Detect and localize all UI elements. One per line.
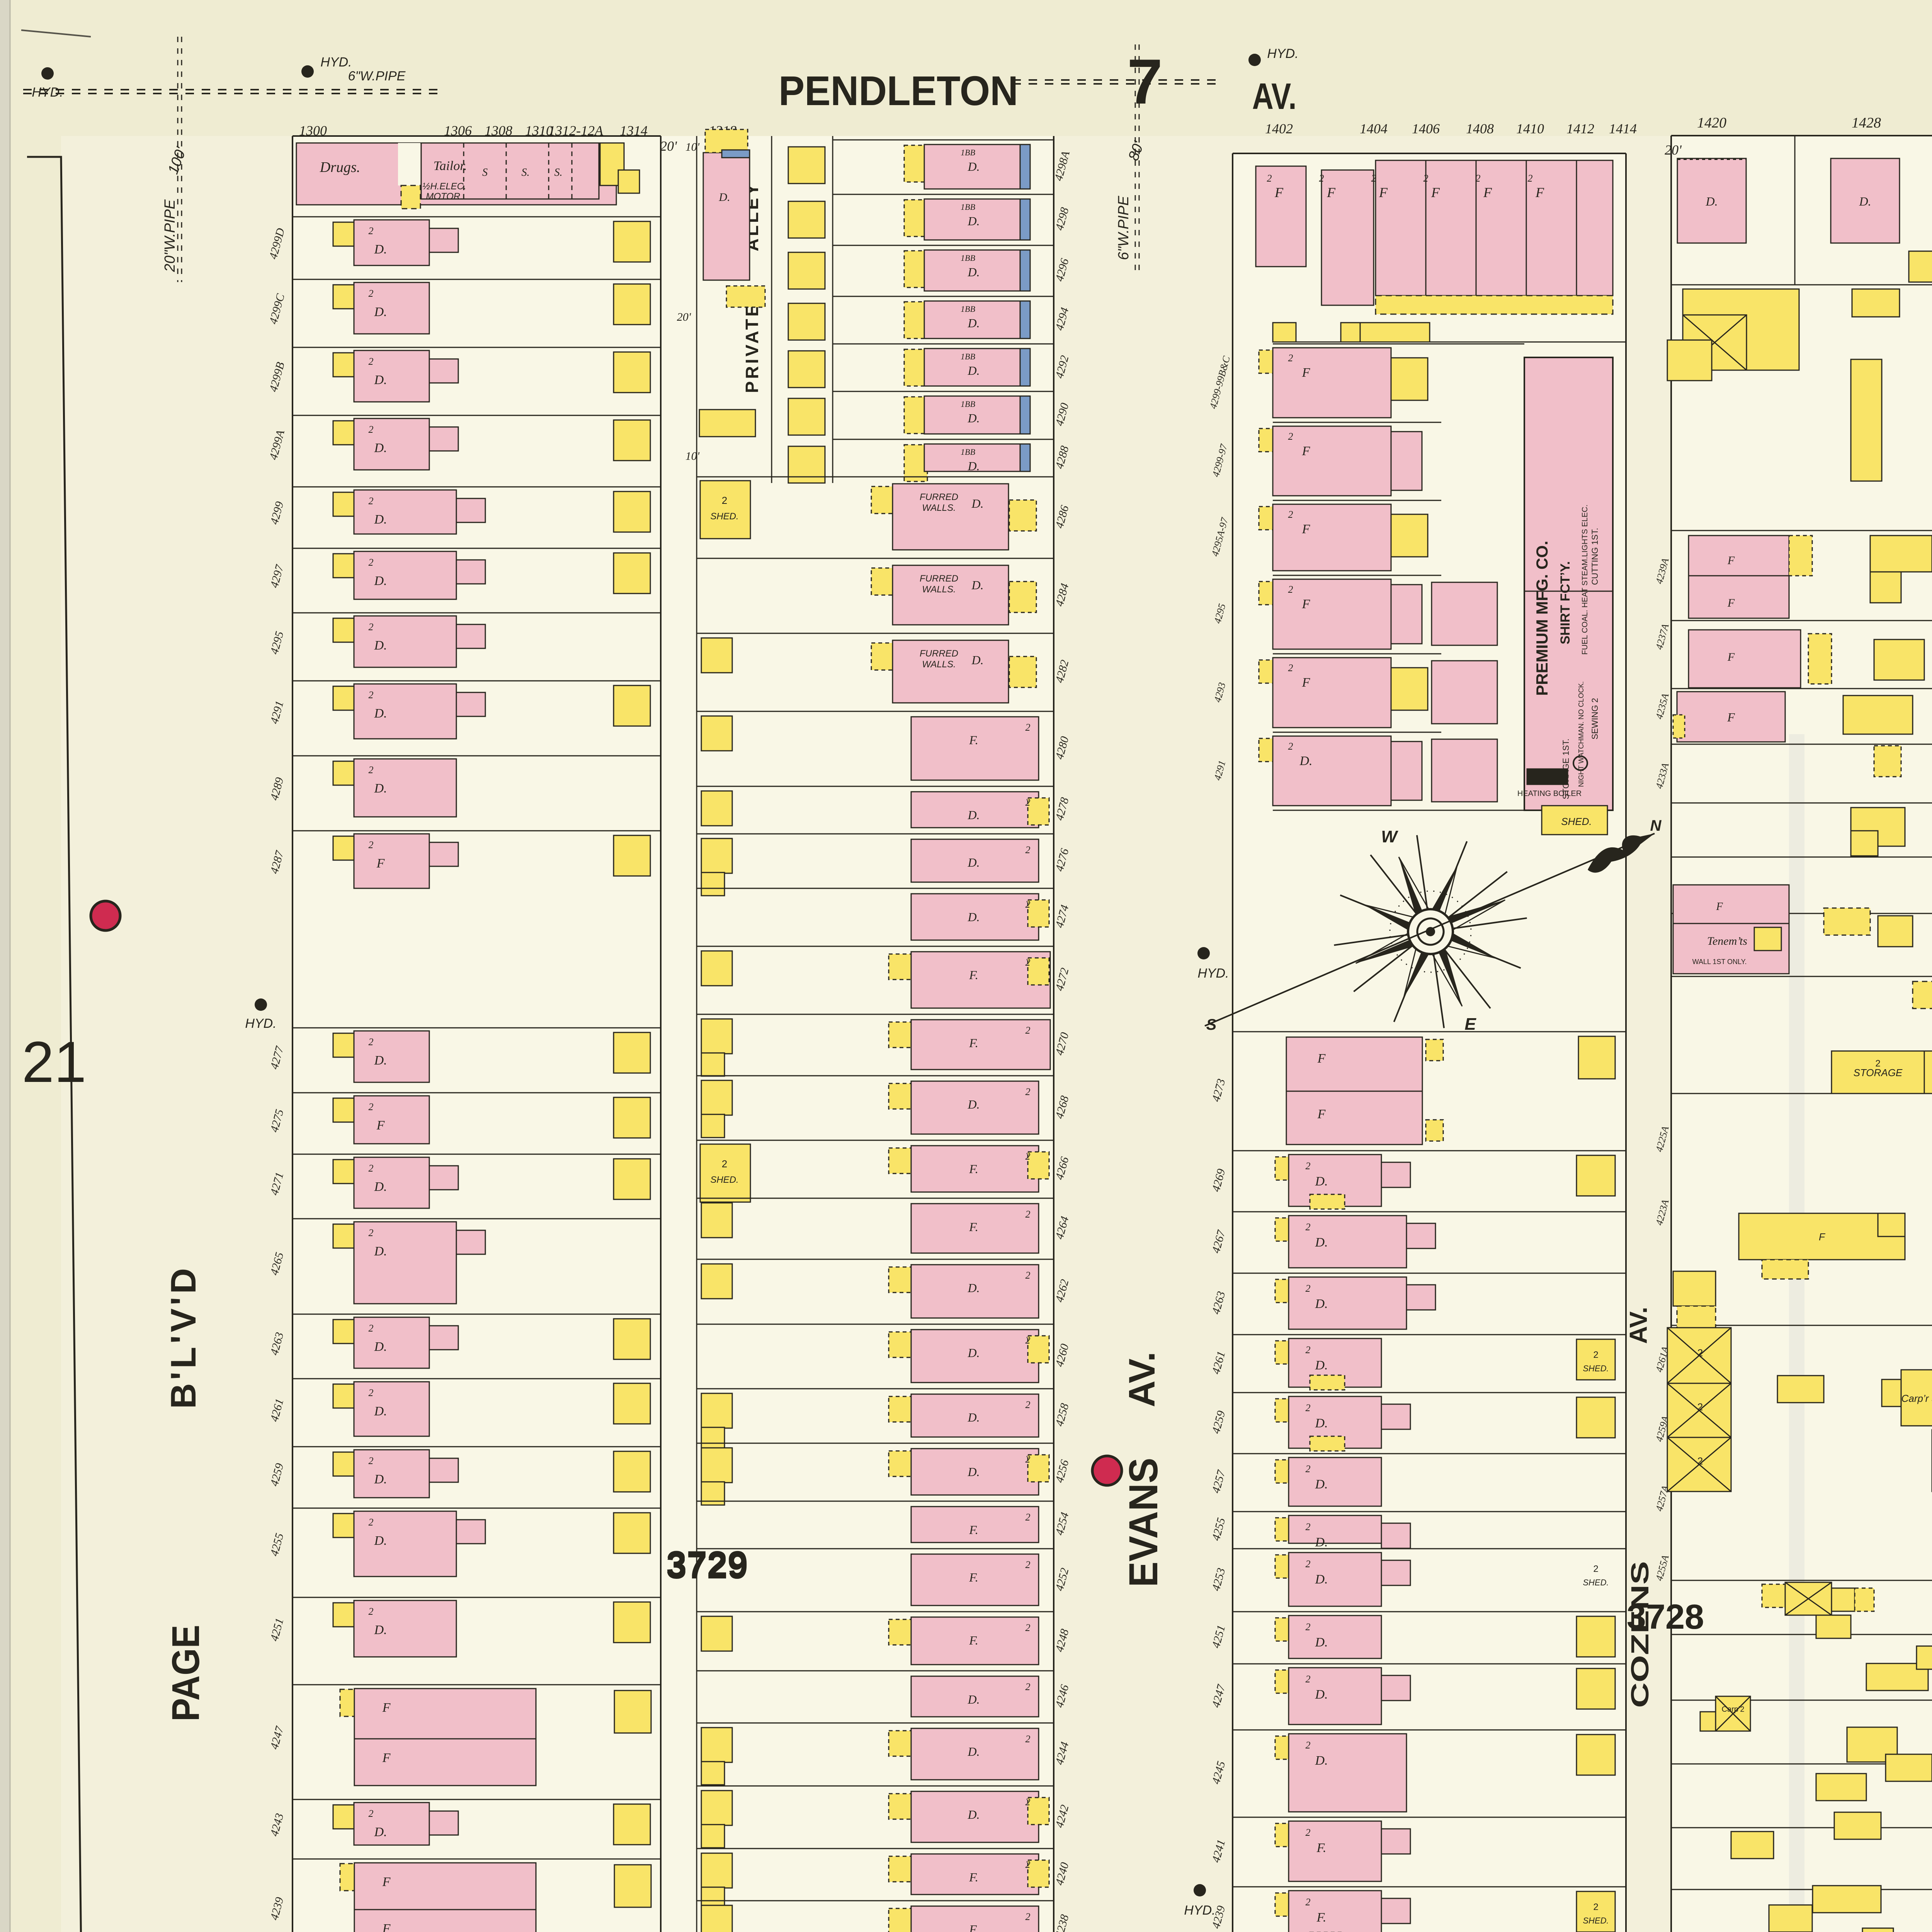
svg-text:Tenem’ts: Tenem’ts bbox=[1707, 935, 1747, 947]
svg-text:F: F bbox=[1727, 710, 1735, 724]
svg-text:F: F bbox=[1727, 651, 1735, 663]
svg-text:F: F bbox=[1727, 554, 1735, 567]
svg-text:2: 2 bbox=[369, 764, 374, 776]
svg-text:D.: D. bbox=[967, 316, 980, 330]
svg-text:D.: D. bbox=[1315, 1477, 1328, 1492]
svg-text:HYD.: HYD. bbox=[32, 85, 63, 100]
svg-text:AV.: AV. bbox=[1121, 1352, 1163, 1407]
svg-text:1414: 1414 bbox=[1609, 121, 1637, 136]
svg-text:WALLS.: WALLS. bbox=[922, 659, 956, 670]
svg-text:D.: D. bbox=[374, 441, 387, 455]
svg-text:2: 2 bbox=[1288, 352, 1293, 364]
svg-text:F: F bbox=[1327, 185, 1336, 200]
svg-text:Carp’2: Carp’2 bbox=[1722, 1705, 1745, 1714]
svg-text:2: 2 bbox=[722, 1158, 727, 1170]
svg-text:D.: D. bbox=[1315, 1687, 1328, 1702]
svg-text:2: 2 bbox=[1306, 1673, 1311, 1685]
svg-text:D.: D. bbox=[971, 497, 983, 510]
svg-text:2: 2 bbox=[1875, 1058, 1880, 1069]
svg-text:1402: 1402 bbox=[1265, 121, 1293, 136]
svg-text:2: 2 bbox=[1026, 1270, 1031, 1281]
svg-text:2: 2 bbox=[1267, 173, 1272, 184]
svg-text:1408: 1408 bbox=[1466, 121, 1494, 136]
svg-text:FUEL COAL. HEAT STEAM.LIGHTS E: FUEL COAL. HEAT STEAM.LIGHTS ELEC. bbox=[1581, 505, 1589, 655]
svg-text:D.: D. bbox=[1299, 754, 1312, 768]
svg-text:HYD.: HYD. bbox=[245, 1016, 276, 1031]
svg-text:F: F bbox=[382, 1751, 391, 1765]
svg-text:W: W bbox=[1381, 827, 1398, 846]
svg-text:CUTTING 1ST.: CUTTING 1ST. bbox=[1590, 528, 1600, 585]
svg-text:F: F bbox=[1302, 675, 1311, 690]
svg-text:D.: D. bbox=[374, 1340, 387, 1354]
svg-text:2: 2 bbox=[1593, 1902, 1598, 1912]
svg-text:6"W.PIPE: 6"W.PIPE bbox=[348, 69, 406, 83]
svg-text:F: F bbox=[1431, 185, 1440, 200]
svg-text:D.: D. bbox=[967, 910, 980, 924]
svg-text:D.: D. bbox=[718, 191, 730, 204]
svg-text:WALL 1ST ONLY.: WALL 1ST ONLY. bbox=[1692, 958, 1747, 966]
svg-text:2: 2 bbox=[1026, 844, 1031, 855]
svg-text:3729: 3729 bbox=[666, 1546, 748, 1587]
svg-text:HYD.: HYD. bbox=[1184, 1903, 1215, 1918]
svg-text:F: F bbox=[1317, 1051, 1326, 1066]
svg-text:2: 2 bbox=[369, 1387, 374, 1398]
svg-text:2: 2 bbox=[1319, 173, 1324, 184]
svg-text:F.: F. bbox=[969, 968, 978, 982]
svg-text:2: 2 bbox=[1371, 173, 1376, 184]
svg-text:PAGE: PAGE bbox=[164, 1625, 207, 1721]
svg-text:F.: F. bbox=[1316, 1910, 1327, 1925]
svg-text:2: 2 bbox=[1026, 1025, 1031, 1036]
svg-text:2: 2 bbox=[1026, 957, 1031, 968]
svg-text:D.: D. bbox=[1315, 1235, 1328, 1250]
svg-text:EVANS: EVANS bbox=[1121, 1458, 1166, 1587]
svg-text:D.: D. bbox=[971, 653, 983, 667]
svg-text:F.: F. bbox=[969, 733, 978, 747]
svg-text:2: 2 bbox=[369, 424, 374, 435]
svg-text:SHED.: SHED. bbox=[1583, 1364, 1609, 1373]
svg-text:F.: F. bbox=[969, 1036, 978, 1050]
svg-text:2: 2 bbox=[1423, 173, 1429, 184]
svg-text:2: 2 bbox=[369, 1323, 374, 1334]
svg-text:2: 2 bbox=[1593, 1564, 1598, 1574]
svg-text:F.: F. bbox=[969, 1870, 978, 1884]
svg-text:2: 2 bbox=[1697, 1347, 1703, 1359]
svg-text:2: 2 bbox=[1306, 1521, 1311, 1532]
svg-text:2: 2 bbox=[369, 557, 374, 568]
svg-text:2: 2 bbox=[369, 356, 374, 367]
svg-text:2: 2 bbox=[1026, 1454, 1031, 1465]
svg-text:½H.ELEC.: ½H.ELEC. bbox=[422, 181, 466, 192]
svg-text:F.: F. bbox=[969, 1523, 978, 1537]
svg-text:HYD.: HYD. bbox=[1267, 46, 1298, 61]
svg-text:20': 20' bbox=[660, 138, 677, 154]
svg-text:D.: D. bbox=[967, 1692, 980, 1706]
svg-text:SHED.: SHED. bbox=[710, 1175, 738, 1185]
svg-text:2: 2 bbox=[1306, 1621, 1311, 1633]
svg-text:NIGHT WATCHMAN. NO CLOCK.: NIGHT WATCHMAN. NO CLOCK. bbox=[1577, 681, 1585, 787]
svg-text:2: 2 bbox=[1697, 1401, 1703, 1413]
svg-text:2: 2 bbox=[1026, 1859, 1031, 1870]
svg-text:2: 2 bbox=[1026, 1086, 1031, 1097]
svg-text:2: 2 bbox=[1026, 1399, 1031, 1410]
svg-text:2: 2 bbox=[1306, 1221, 1311, 1233]
svg-text:2: 2 bbox=[1026, 1733, 1031, 1745]
svg-text:20': 20' bbox=[677, 311, 691, 323]
svg-text:D.: D. bbox=[967, 1346, 980, 1360]
svg-text:D.: D. bbox=[374, 1472, 387, 1486]
svg-text:1BB: 1BB bbox=[961, 352, 975, 361]
svg-text:2: 2 bbox=[369, 839, 374, 850]
svg-text:D.: D. bbox=[1315, 1635, 1328, 1650]
svg-text:D.: D. bbox=[374, 1623, 387, 1637]
svg-text:2: 2 bbox=[369, 689, 374, 701]
svg-text:2: 2 bbox=[369, 1606, 374, 1617]
svg-text:2: 2 bbox=[1288, 662, 1293, 673]
svg-text:PREMIUM MFG. CO.: PREMIUM MFG. CO. bbox=[1533, 541, 1551, 696]
svg-text:F.: F. bbox=[1316, 1841, 1327, 1855]
svg-text:2: 2 bbox=[1026, 722, 1031, 733]
svg-text:D.: D. bbox=[374, 1244, 387, 1259]
svg-text:2: 2 bbox=[369, 225, 374, 236]
svg-text:D.: D. bbox=[971, 578, 983, 592]
svg-text:F.: F. bbox=[969, 1220, 978, 1234]
svg-text:D.: D. bbox=[374, 1825, 387, 1839]
svg-text:D.: D. bbox=[967, 214, 980, 228]
svg-text:D.: D. bbox=[967, 411, 980, 425]
svg-text:3728: 3728 bbox=[1627, 1598, 1704, 1636]
svg-text:2: 2 bbox=[1026, 1151, 1031, 1162]
svg-text:2: 2 bbox=[1476, 173, 1481, 184]
svg-text:FURRED: FURRED bbox=[920, 648, 958, 659]
svg-text:D.: D. bbox=[374, 1534, 387, 1548]
svg-text:AV.: AV. bbox=[1252, 76, 1297, 117]
svg-text:2: 2 bbox=[1026, 1681, 1031, 1692]
svg-text:F: F bbox=[1819, 1231, 1826, 1243]
svg-text:2: 2 bbox=[1697, 1455, 1703, 1467]
svg-text:D.: D. bbox=[967, 1410, 980, 1424]
svg-text:PENDLETON: PENDLETON bbox=[779, 67, 1018, 114]
svg-text:2: 2 bbox=[1026, 1911, 1031, 1922]
svg-text:D.: D. bbox=[967, 459, 980, 473]
svg-text:D.: D. bbox=[374, 1180, 387, 1194]
svg-text:F: F bbox=[382, 1875, 391, 1889]
svg-text:2: 2 bbox=[1026, 1559, 1031, 1570]
svg-text:D.: D. bbox=[1315, 1174, 1328, 1189]
svg-text:SHED.: SHED. bbox=[710, 511, 738, 522]
svg-text:F: F bbox=[1302, 366, 1311, 380]
svg-text:E: E bbox=[1464, 1015, 1476, 1034]
svg-text:F: F bbox=[382, 1922, 391, 1932]
svg-text:2: 2 bbox=[1288, 741, 1293, 752]
svg-text:F.: F. bbox=[969, 1162, 978, 1176]
svg-text:20"W.PIPE: 20"W.PIPE bbox=[162, 199, 178, 272]
svg-text:S.: S. bbox=[522, 167, 530, 179]
svg-text:Carp’r Shop: Carp’r Shop bbox=[1901, 1393, 1932, 1404]
svg-text:2: 2 bbox=[369, 1036, 374, 1048]
svg-text:D.: D. bbox=[967, 265, 980, 279]
svg-text:SEWING 2: SEWING 2 bbox=[1590, 698, 1600, 740]
svg-text:2: 2 bbox=[369, 1227, 374, 1238]
svg-text:Tailor.: Tailor. bbox=[434, 159, 467, 173]
svg-text:2: 2 bbox=[1306, 1558, 1311, 1570]
svg-text:2: 2 bbox=[1528, 173, 1533, 184]
svg-text:1300: 1300 bbox=[299, 123, 327, 138]
svg-text:FURRED: FURRED bbox=[920, 492, 958, 502]
svg-text:1410: 1410 bbox=[1516, 121, 1544, 136]
svg-text:HYD.: HYD. bbox=[320, 55, 352, 70]
svg-text:1406: 1406 bbox=[1412, 121, 1440, 136]
svg-text:Drugs.: Drugs. bbox=[320, 159, 361, 175]
svg-text:2: 2 bbox=[1306, 1402, 1311, 1413]
svg-text:1412: 1412 bbox=[1566, 121, 1594, 136]
svg-text:F: F bbox=[376, 1118, 385, 1133]
svg-text:F: F bbox=[1727, 597, 1735, 609]
svg-text:S: S bbox=[1206, 1016, 1217, 1033]
svg-text:2: 2 bbox=[369, 288, 374, 299]
svg-text:F: F bbox=[1317, 1107, 1326, 1121]
svg-text:1308: 1308 bbox=[485, 123, 512, 138]
svg-text:2: 2 bbox=[1026, 899, 1031, 910]
svg-text:F.: F. bbox=[969, 1633, 978, 1647]
svg-text:2: 2 bbox=[1026, 1512, 1031, 1523]
svg-text:10': 10' bbox=[685, 450, 700, 463]
svg-text:2: 2 bbox=[1593, 1350, 1598, 1360]
svg-text:2: 2 bbox=[369, 1808, 374, 1819]
svg-text:SHED.: SHED. bbox=[1583, 1578, 1609, 1587]
svg-text:F: F bbox=[1302, 597, 1311, 611]
svg-text:D.: D. bbox=[967, 1465, 980, 1479]
svg-text:2: 2 bbox=[1306, 1160, 1311, 1172]
svg-text:S.: S. bbox=[554, 167, 563, 179]
svg-text:1420: 1420 bbox=[1697, 115, 1726, 131]
svg-text:HYD.: HYD. bbox=[1197, 966, 1229, 981]
svg-text:1312-12A: 1312-12A bbox=[548, 123, 604, 138]
svg-text:AV.: AV. bbox=[1624, 1307, 1652, 1344]
svg-text:1428: 1428 bbox=[1852, 115, 1881, 131]
svg-text:D.: D. bbox=[967, 1745, 980, 1759]
svg-text:D.: D. bbox=[967, 1097, 980, 1111]
svg-text:2: 2 bbox=[1306, 1463, 1311, 1475]
svg-text:2: 2 bbox=[1026, 1209, 1031, 1220]
svg-text:2: 2 bbox=[1306, 1283, 1311, 1294]
svg-text:1306: 1306 bbox=[444, 123, 472, 138]
svg-text:D.: D. bbox=[967, 1281, 980, 1295]
svg-text:D.: D. bbox=[374, 305, 387, 319]
svg-text:D.: D. bbox=[1315, 1358, 1328, 1372]
svg-text:20': 20' bbox=[1665, 142, 1682, 158]
svg-text:SHED.: SHED. bbox=[1583, 1916, 1609, 1925]
svg-text:2: 2 bbox=[1288, 431, 1293, 442]
svg-text:2: 2 bbox=[1026, 1335, 1031, 1346]
svg-text:1BB: 1BB bbox=[961, 253, 975, 263]
svg-text:FURRED: FURRED bbox=[920, 573, 958, 584]
svg-text:D.: D. bbox=[967, 1808, 980, 1821]
svg-text:S: S bbox=[482, 167, 488, 179]
svg-text:F: F bbox=[376, 856, 385, 871]
svg-text:2: 2 bbox=[1306, 1740, 1311, 1751]
svg-text:1BB: 1BB bbox=[961, 304, 975, 314]
svg-text:2: 2 bbox=[722, 495, 727, 506]
svg-text:2: 2 bbox=[369, 1101, 374, 1112]
svg-text:7: 7 bbox=[1127, 46, 1163, 117]
svg-text:B'L'V'D: B'L'V'D bbox=[164, 1265, 203, 1409]
svg-text:D.: D. bbox=[374, 373, 387, 387]
svg-text:D.: D. bbox=[1315, 1416, 1328, 1430]
svg-text:D.: D. bbox=[374, 242, 387, 257]
svg-text:F: F bbox=[1483, 185, 1492, 200]
svg-text:1BB: 1BB bbox=[961, 399, 975, 409]
svg-text:1BB: 1BB bbox=[961, 202, 975, 212]
svg-text:HEATING BOILER: HEATING BOILER bbox=[1517, 789, 1582, 798]
svg-text:2: 2 bbox=[1026, 797, 1031, 808]
svg-text:SHIRT FCT’Y.: SHIRT FCT’Y. bbox=[1558, 561, 1573, 644]
svg-text:2: 2 bbox=[1026, 1622, 1031, 1633]
svg-text:6"W.PIPE: 6"W.PIPE bbox=[1116, 196, 1132, 260]
svg-text:2: 2 bbox=[1306, 1344, 1311, 1355]
svg-text:D.: D. bbox=[967, 855, 980, 869]
svg-text:2: 2 bbox=[1026, 1796, 1031, 1808]
svg-text:F: F bbox=[1535, 185, 1544, 200]
svg-text:D.: D. bbox=[1315, 1297, 1328, 1311]
svg-text:D.: D. bbox=[967, 364, 980, 378]
svg-text:F: F bbox=[1302, 444, 1311, 458]
svg-text:WALLS.: WALLS. bbox=[922, 503, 956, 513]
svg-text:21: 21 bbox=[22, 1029, 87, 1094]
svg-text:D.: D. bbox=[967, 808, 980, 822]
svg-text:2: 2 bbox=[369, 621, 374, 633]
svg-text:10': 10' bbox=[685, 141, 700, 153]
svg-text:1404: 1404 bbox=[1360, 121, 1388, 136]
svg-text:D.: D. bbox=[1859, 194, 1871, 208]
svg-text:D.: D. bbox=[1705, 194, 1718, 208]
svg-text:D.: D. bbox=[1315, 1535, 1328, 1549]
svg-text:D.: D. bbox=[374, 1404, 387, 1418]
svg-text:D.: D. bbox=[374, 1053, 387, 1068]
svg-text:F: F bbox=[1302, 522, 1311, 536]
svg-text:F: F bbox=[1274, 185, 1284, 200]
svg-text:1BB: 1BB bbox=[961, 447, 975, 457]
svg-text:2: 2 bbox=[1306, 1827, 1311, 1838]
svg-text:D.: D. bbox=[374, 781, 387, 796]
svg-text:PRIVATE: PRIVATE bbox=[742, 303, 762, 393]
svg-text:N: N bbox=[1650, 817, 1662, 834]
svg-text:F: F bbox=[382, 1701, 391, 1715]
svg-text:D.: D. bbox=[967, 160, 980, 173]
svg-text:D.: D. bbox=[374, 512, 387, 527]
svg-text:2: 2 bbox=[369, 495, 374, 507]
svg-text:D.: D. bbox=[374, 638, 387, 653]
svg-text:D.: D. bbox=[374, 574, 387, 588]
svg-text:1BB: 1BB bbox=[961, 148, 975, 157]
svg-text:D.: D. bbox=[374, 706, 387, 721]
svg-text:2: 2 bbox=[1288, 509, 1293, 520]
svg-text:D.: D. bbox=[1315, 1572, 1328, 1587]
svg-text:1314: 1314 bbox=[620, 123, 648, 138]
svg-text:2: 2 bbox=[1288, 584, 1293, 595]
svg-text:F.: F. bbox=[969, 1922, 978, 1932]
svg-text:F: F bbox=[1716, 901, 1723, 913]
svg-text:D.: D. bbox=[1315, 1753, 1328, 1768]
svg-text:2: 2 bbox=[369, 1455, 374, 1466]
svg-text:F.: F. bbox=[969, 1570, 978, 1584]
svg-text:SHED.: SHED. bbox=[1561, 816, 1592, 827]
svg-text:2: 2 bbox=[369, 1163, 374, 1174]
svg-text:WALLS.: WALLS. bbox=[922, 584, 956, 595]
svg-text:F: F bbox=[1379, 185, 1388, 200]
svg-text:MOTOR.: MOTOR. bbox=[426, 191, 463, 202]
svg-text:2: 2 bbox=[369, 1517, 374, 1528]
svg-text:2: 2 bbox=[1306, 1896, 1311, 1908]
